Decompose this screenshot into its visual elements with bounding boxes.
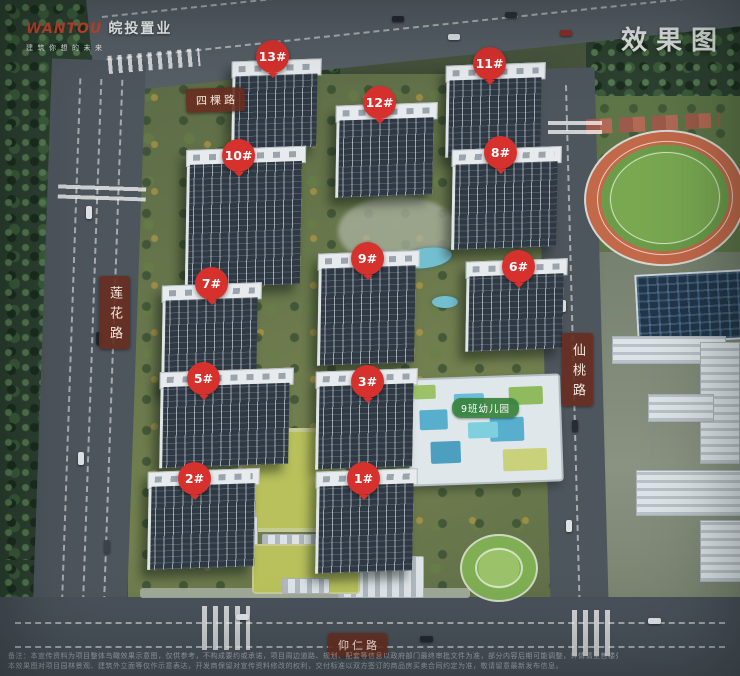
kindergarten-building: [406, 373, 564, 486]
badge-label: 7#: [202, 276, 221, 291]
kindergarten-yard: [503, 448, 548, 472]
road-name: 四棵路: [196, 93, 238, 107]
vehicle: [572, 420, 578, 432]
building-badge-6: 6#: [502, 250, 535, 283]
rendering-type-label: 效果图: [621, 20, 726, 57]
tower-facade: [338, 117, 433, 197]
lane-marking: [59, 78, 82, 670]
vehicle: [448, 34, 460, 40]
badge-label: 13#: [259, 49, 287, 64]
crosswalk: [202, 606, 250, 650]
brand-logo-cn: 皖投置业: [108, 18, 172, 38]
building-badge-3: 3#: [351, 365, 384, 398]
brand-tagline: 建筑你想的未来: [26, 43, 172, 53]
school-building: [648, 394, 714, 422]
badge-label: 3#: [358, 374, 377, 389]
tower-facade: [150, 483, 255, 570]
school-building: [636, 470, 740, 516]
road-name: 莲花路: [107, 286, 122, 346]
disclaimer-line-2: 本效果图对项目园林景观、建筑外立面等仅作示意表达，开发商保留对宣传资料修改的权利…: [8, 661, 618, 671]
vehicle: [505, 12, 517, 18]
badge-label: 9#: [358, 251, 377, 266]
badge-label: 8#: [491, 145, 510, 160]
aerial-rendering: 13# 11# 12# 10# 8# 9# 6# 7# 5# 3# 2# 1# …: [0, 0, 740, 676]
vehicle: [648, 618, 661, 624]
kindergarten-pool: [468, 422, 499, 439]
building-badge-10: 10#: [222, 139, 255, 172]
kindergarten-label: 9班幼儿园: [452, 398, 519, 418]
badge-label: 5#: [194, 371, 213, 386]
kindergarten-roof-garden: [413, 385, 435, 400]
school-building: [700, 520, 740, 582]
disclaimer-text: 备注：本宣传资料为项目整体鸟瞰效果示意图，仅供参考，不构成要约或承诺，项目周边道…: [8, 651, 618, 671]
lane-marking: [15, 622, 725, 624]
disclaimer-line-1: 备注：本宣传资料为项目整体鸟瞰效果示意图，仅供参考，不构成要约或承诺，项目周边道…: [8, 651, 618, 661]
road-label-left: 莲花路: [99, 276, 130, 349]
crosswalk: [572, 610, 616, 656]
vehicle: [420, 636, 433, 642]
building-badge-9: 9#: [351, 242, 384, 275]
building-badge-12: 12#: [363, 86, 396, 119]
building-badge-1: 1#: [347, 462, 380, 495]
round-garden: [460, 534, 538, 602]
vehicle: [104, 540, 110, 553]
vehicle: [78, 452, 84, 465]
building-badge-2: 2#: [178, 462, 211, 495]
lane-marking: [80, 79, 103, 671]
building-badge-7: 7#: [195, 267, 228, 300]
tower-facade: [454, 161, 557, 250]
road-name: 仙桃路: [570, 343, 585, 403]
kindergarten-roof-panel: [419, 409, 448, 430]
crosswalk: [58, 180, 147, 201]
vehicle: [86, 206, 92, 219]
building-badge-11: 11#: [473, 47, 506, 80]
poi-name: 9班幼儿园: [461, 404, 510, 415]
tower-facade: [162, 383, 289, 468]
building-tower-5: [159, 368, 290, 469]
brand-logo-en: WANTOU: [26, 21, 102, 37]
badge-label: 11#: [476, 56, 504, 71]
badge-label: 6#: [509, 259, 528, 274]
badge-label: 12#: [366, 95, 394, 110]
kindergarten-roof-panel: [430, 441, 461, 464]
road-label-top: 四棵路: [186, 87, 246, 113]
badge-label: 2#: [185, 471, 204, 486]
road-label-right: 仙桃路: [562, 333, 593, 406]
vehicle: [236, 614, 249, 620]
crosswalk: [548, 118, 602, 134]
brand-watermark: WANTOU 皖投置业 建筑你想的未来: [26, 18, 172, 53]
tower-facade: [234, 73, 317, 149]
building-badge-5: 5#: [187, 362, 220, 395]
vehicle: [566, 520, 572, 532]
building-badge-13: 13#: [256, 40, 289, 73]
water-feature: [432, 296, 458, 308]
solar-roof-building: [634, 269, 740, 345]
lane-marking: [100, 80, 123, 672]
entrance-canopy: [282, 578, 330, 594]
vehicle: [392, 16, 404, 22]
vehicle: [560, 30, 572, 36]
building-badge-8: 8#: [484, 136, 517, 169]
badge-label: 1#: [354, 471, 373, 486]
badge-label: 10#: [225, 148, 253, 163]
